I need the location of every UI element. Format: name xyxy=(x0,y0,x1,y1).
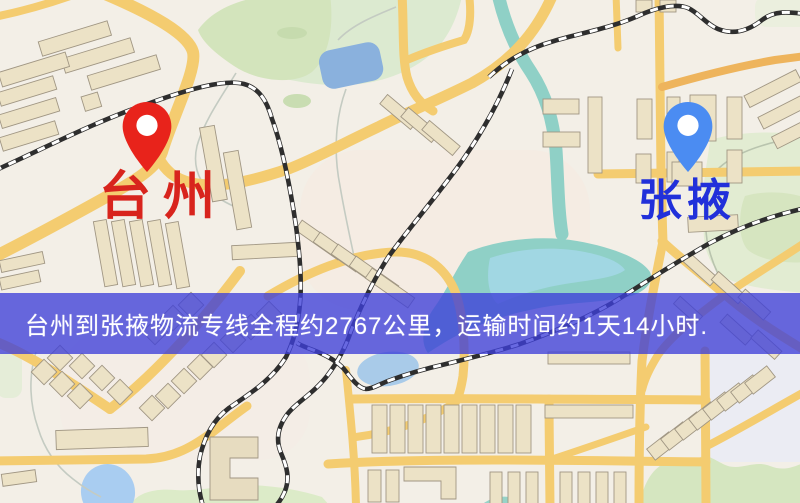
origin-pin-icon[interactable] xyxy=(120,101,174,173)
route-info-banner: 台州到张掖物流专线全程约2767公里，运输时间约1天14小时. xyxy=(0,293,800,354)
route-info-text: 台州到张掖物流专线全程约2767公里，运输时间约1天14小时. xyxy=(0,306,708,341)
destination-pin-icon[interactable] xyxy=(661,101,715,173)
origin-label: 台州 xyxy=(99,172,227,224)
map-image xyxy=(0,0,800,503)
logistics-route-map: 台州 张掖 台州到张掖物流专线全程约2767公里，运输时间约1天14小时. xyxy=(0,0,800,503)
destination-label: 张掖 xyxy=(638,179,736,223)
